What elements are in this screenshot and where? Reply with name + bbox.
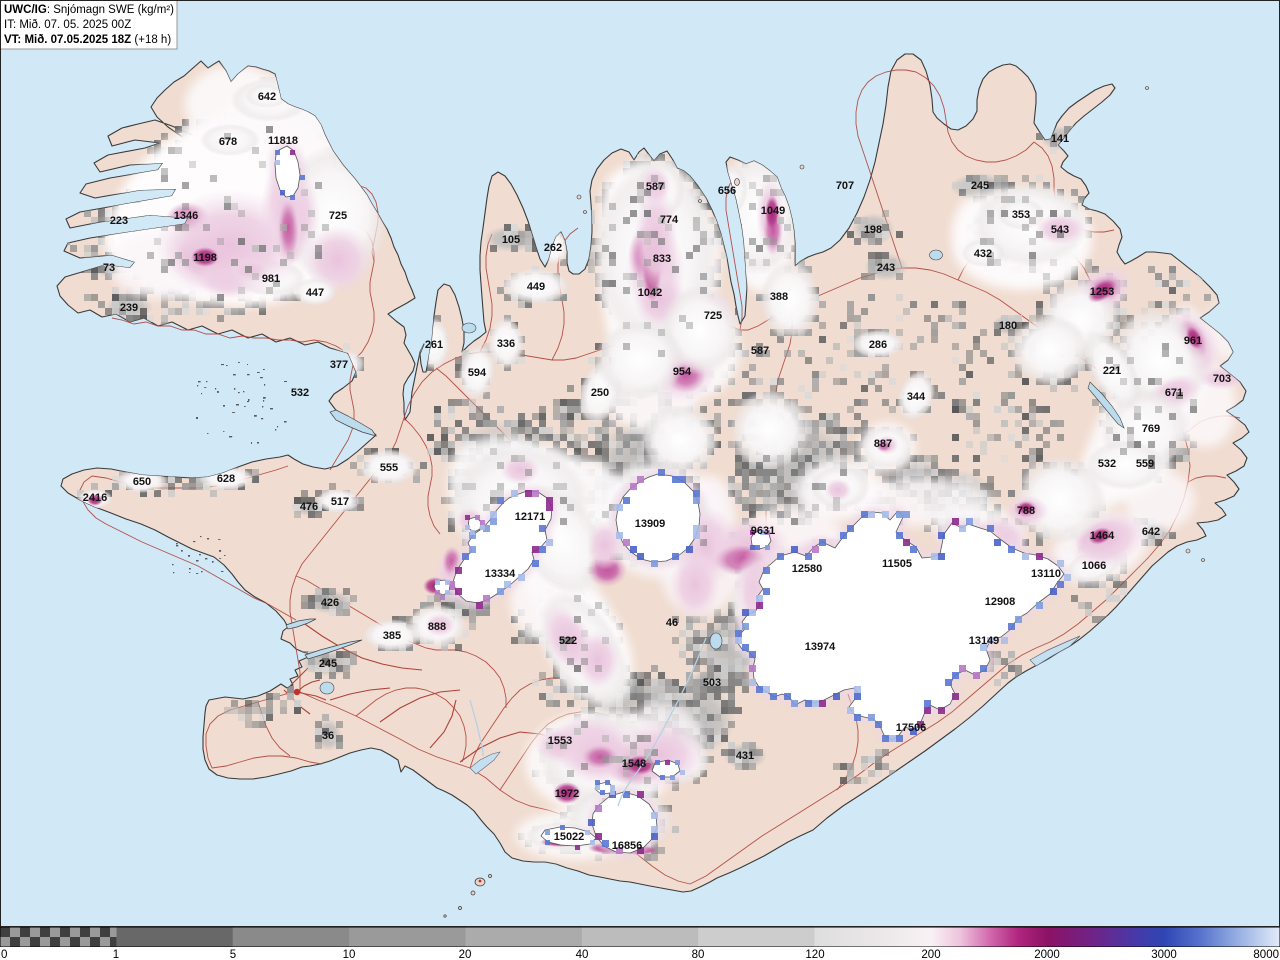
svg-text:336: 336: [497, 338, 515, 350]
svg-text:5: 5: [230, 949, 236, 960]
svg-text:2416: 2416: [83, 492, 107, 504]
svg-text:559: 559: [1136, 458, 1154, 470]
svg-text:243: 243: [877, 262, 895, 274]
svg-text:10: 10: [343, 949, 356, 960]
svg-text:981: 981: [262, 273, 280, 285]
svg-text:1049: 1049: [761, 205, 785, 217]
svg-text:12908: 12908: [985, 596, 1016, 608]
svg-text:1042: 1042: [638, 287, 662, 299]
svg-text:17506: 17506: [896, 722, 927, 734]
svg-text:774: 774: [660, 214, 679, 226]
svg-text:239: 239: [120, 302, 138, 314]
svg-text:15022: 15022: [554, 831, 585, 843]
svg-text:725: 725: [329, 210, 347, 222]
svg-text:IT: Mið. 07. 05. 2025 00Z: IT: Mið. 07. 05. 2025 00Z: [4, 19, 131, 31]
svg-text:11818: 11818: [268, 135, 298, 147]
svg-text:385: 385: [383, 630, 401, 642]
svg-text:1464: 1464: [1090, 530, 1115, 542]
svg-text:961: 961: [1184, 335, 1202, 347]
svg-text:1972: 1972: [555, 788, 579, 800]
svg-text:261: 261: [425, 339, 443, 351]
svg-text:476: 476: [300, 501, 318, 513]
svg-text:200: 200: [921, 949, 940, 960]
svg-text:543: 543: [1051, 224, 1069, 236]
svg-text:449: 449: [527, 281, 545, 293]
svg-text:13909: 13909: [635, 518, 666, 530]
svg-text:16856: 16856: [612, 840, 643, 852]
svg-text:642: 642: [1142, 526, 1160, 538]
svg-text:8000: 8000: [1253, 949, 1279, 960]
svg-text:1198: 1198: [193, 252, 217, 264]
svg-text:587: 587: [646, 181, 664, 193]
svg-text:628: 628: [217, 473, 235, 485]
svg-text:447: 447: [306, 287, 324, 299]
svg-text:833: 833: [653, 253, 671, 265]
svg-text:13110: 13110: [1031, 568, 1061, 580]
svg-text:769: 769: [1142, 423, 1160, 435]
svg-text:40: 40: [576, 949, 589, 960]
svg-text:3000: 3000: [1151, 949, 1177, 960]
svg-text:344: 344: [907, 391, 926, 403]
svg-text:1553: 1553: [548, 735, 572, 747]
svg-text:262: 262: [544, 242, 562, 254]
svg-text:642: 642: [258, 91, 276, 103]
svg-text:650: 650: [133, 476, 151, 488]
svg-text:286: 286: [869, 339, 887, 351]
svg-text:120: 120: [805, 949, 824, 960]
svg-text:1346: 1346: [174, 210, 198, 222]
svg-text:2000: 2000: [1034, 949, 1060, 960]
svg-text:503: 503: [703, 677, 721, 689]
svg-text:VT: Mið. 07.05.2025 18Z (+18 h: VT: Mið. 07.05.2025 18Z (+18 h): [4, 34, 171, 46]
svg-text:725: 725: [704, 310, 722, 322]
svg-text:522: 522: [559, 635, 577, 647]
svg-text:46: 46: [666, 617, 678, 629]
svg-text:532: 532: [1098, 458, 1116, 470]
svg-text:20: 20: [459, 949, 472, 960]
svg-text:388: 388: [770, 291, 788, 303]
svg-text:587: 587: [751, 345, 769, 357]
svg-text:703: 703: [1213, 373, 1231, 385]
svg-text:12580: 12580: [792, 563, 823, 575]
svg-text:198: 198: [864, 224, 882, 236]
svg-text:13149: 13149: [969, 635, 1000, 647]
svg-text:1548: 1548: [622, 758, 646, 770]
svg-text:707: 707: [836, 180, 854, 192]
svg-text:80: 80: [692, 949, 705, 960]
svg-text:223: 223: [110, 215, 128, 227]
svg-text:432: 432: [974, 248, 992, 260]
svg-text:141: 141: [1051, 133, 1069, 145]
svg-text:105: 105: [502, 234, 520, 246]
svg-text:353: 353: [1012, 209, 1030, 221]
svg-text:788: 788: [1017, 505, 1035, 517]
svg-text:9631: 9631: [751, 525, 775, 537]
svg-text:426: 426: [321, 597, 339, 609]
svg-text:1: 1: [113, 949, 119, 960]
svg-text:13974: 13974: [805, 641, 836, 653]
svg-text:656: 656: [718, 185, 736, 197]
svg-text:UWC/IG: Snjómagn SWE (kg/m²): UWC/IG: Snjómagn SWE (kg/m²): [4, 4, 174, 16]
svg-text:73: 73: [103, 262, 115, 274]
svg-text:250: 250: [591, 387, 609, 399]
svg-text:888: 888: [428, 621, 446, 633]
svg-text:532: 532: [291, 387, 309, 399]
svg-text:221: 221: [1103, 365, 1121, 377]
svg-text:431: 431: [736, 750, 754, 762]
svg-text:377: 377: [330, 359, 348, 371]
svg-text:180: 180: [999, 320, 1017, 332]
svg-text:887: 887: [874, 438, 892, 450]
svg-text:678: 678: [219, 136, 237, 148]
svg-text:245: 245: [971, 180, 989, 192]
svg-text:36: 36: [322, 730, 334, 742]
svg-text:13334: 13334: [485, 568, 516, 580]
svg-text:245: 245: [319, 658, 337, 670]
svg-text:671: 671: [1165, 387, 1183, 399]
svg-text:594: 594: [468, 367, 487, 379]
svg-text:954: 954: [673, 366, 692, 378]
svg-text:1066: 1066: [1082, 560, 1106, 572]
svg-text:555: 555: [380, 462, 398, 474]
svg-text:517: 517: [331, 496, 349, 508]
svg-text:12171: 12171: [515, 511, 546, 523]
svg-text:0: 0: [1, 949, 7, 960]
svg-text:11505: 11505: [882, 558, 912, 570]
svg-text:1253: 1253: [1090, 286, 1114, 298]
